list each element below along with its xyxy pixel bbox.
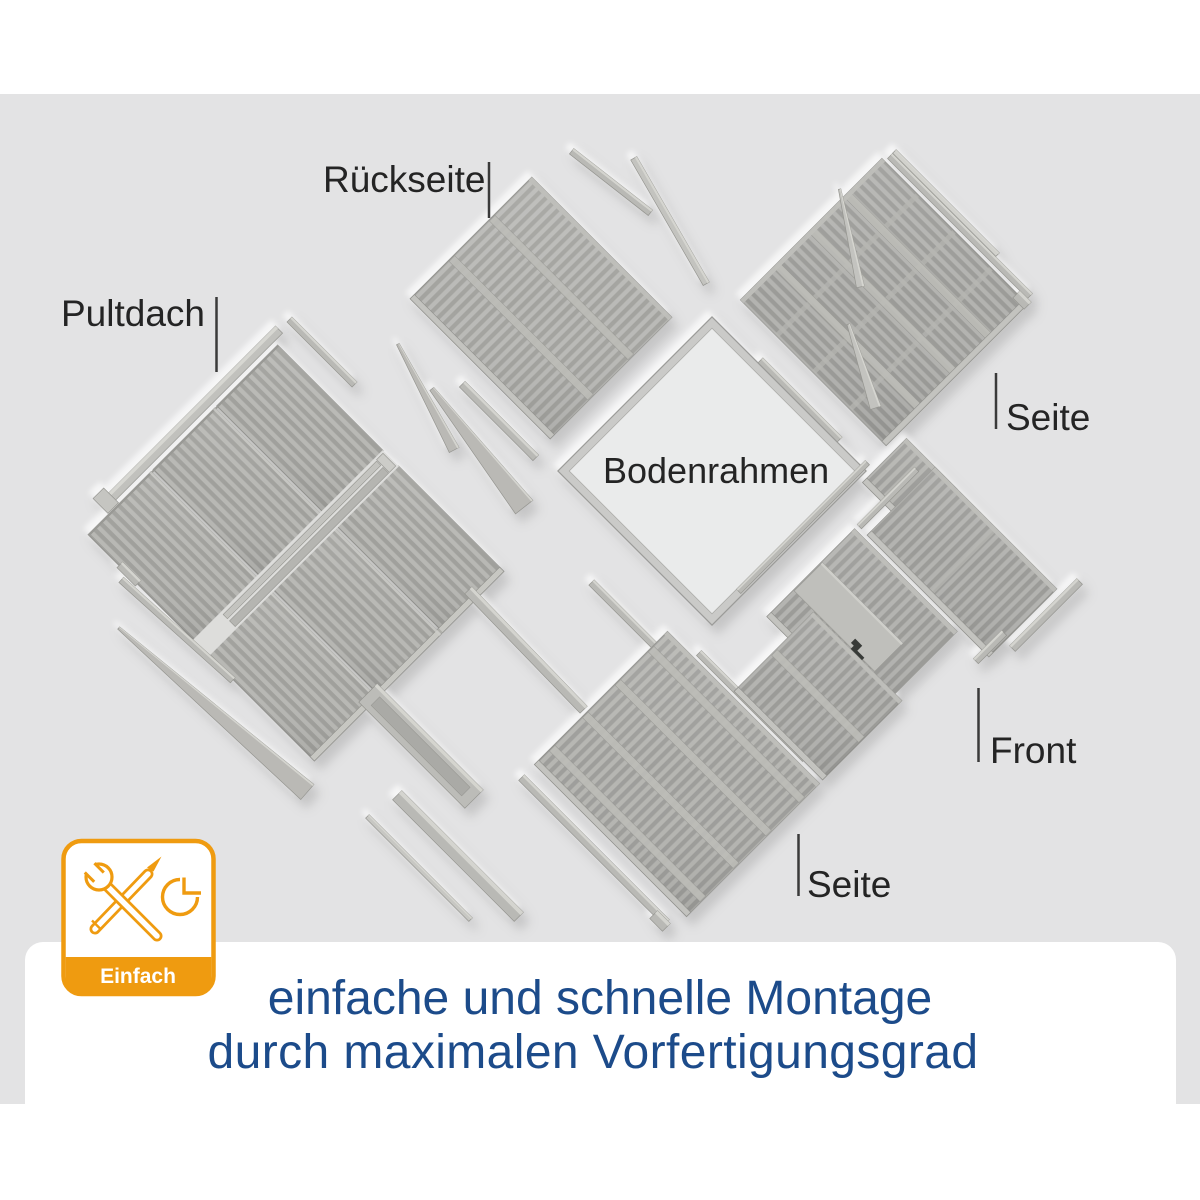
svg-text:Einfach: Einfach (100, 965, 176, 988)
svg-text:Seite: Seite (807, 864, 891, 905)
svg-text:Pultdach: Pultdach (61, 293, 205, 334)
svg-text:Front: Front (990, 730, 1077, 771)
svg-text:einfache und schnelle Montage: einfache und schnelle Montage (268, 972, 932, 1025)
svg-text:Bodenrahmen: Bodenrahmen (603, 450, 829, 491)
svg-text:Seite: Seite (1006, 397, 1090, 438)
svg-text:durch maximalen Vorfertigungsg: durch maximalen Vorfertigungsgrad (208, 1026, 979, 1079)
svg-text:Rückseite: Rückseite (323, 159, 485, 200)
